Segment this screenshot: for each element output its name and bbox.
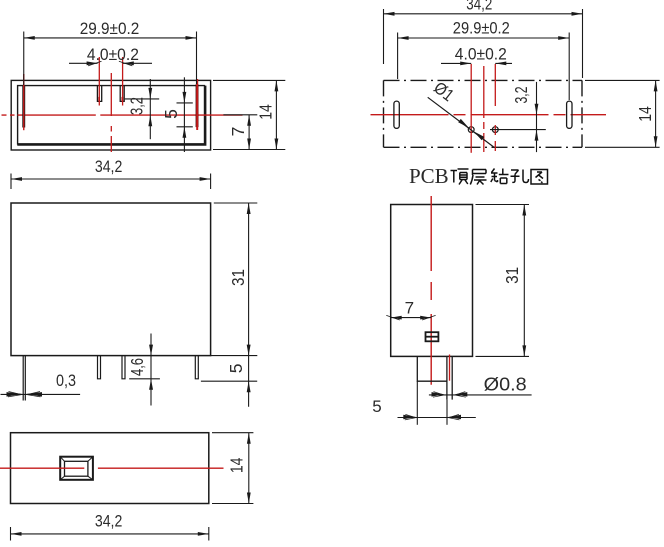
svg-text:4.0±0.2: 4.0±0.2 [87, 45, 139, 64]
svg-text:Ø1: Ø1 [430, 78, 457, 105]
svg-text:5: 5 [226, 364, 246, 374]
svg-text:29.9±0.2: 29.9±0.2 [80, 19, 140, 38]
svg-text:34,2: 34,2 [95, 157, 123, 176]
svg-text:5: 5 [161, 109, 181, 119]
svg-text:31: 31 [228, 269, 248, 286]
svg-text:29.9±0.2: 29.9±0.2 [453, 19, 510, 38]
svg-text:14: 14 [635, 106, 655, 122]
svg-text:0,3: 0,3 [56, 371, 76, 390]
svg-text:4,6: 4,6 [127, 358, 147, 376]
svg-text:5: 5 [372, 397, 381, 416]
svg-text:14: 14 [256, 104, 276, 120]
svg-text:3,2: 3,2 [126, 97, 146, 115]
svg-text:7: 7 [228, 127, 248, 137]
svg-text:31: 31 [502, 267, 522, 284]
svg-text:PCB: PCB [409, 164, 449, 188]
svg-text:Ø0.8: Ø0.8 [484, 375, 527, 395]
svg-text:4.0±0.2: 4.0±0.2 [455, 45, 507, 64]
svg-text:3,2: 3,2 [511, 87, 531, 104]
svg-text:34,2: 34,2 [466, 0, 492, 14]
svg-text:14: 14 [227, 457, 247, 473]
svg-text:7: 7 [405, 299, 414, 318]
svg-text:34,2: 34,2 [95, 512, 123, 531]
